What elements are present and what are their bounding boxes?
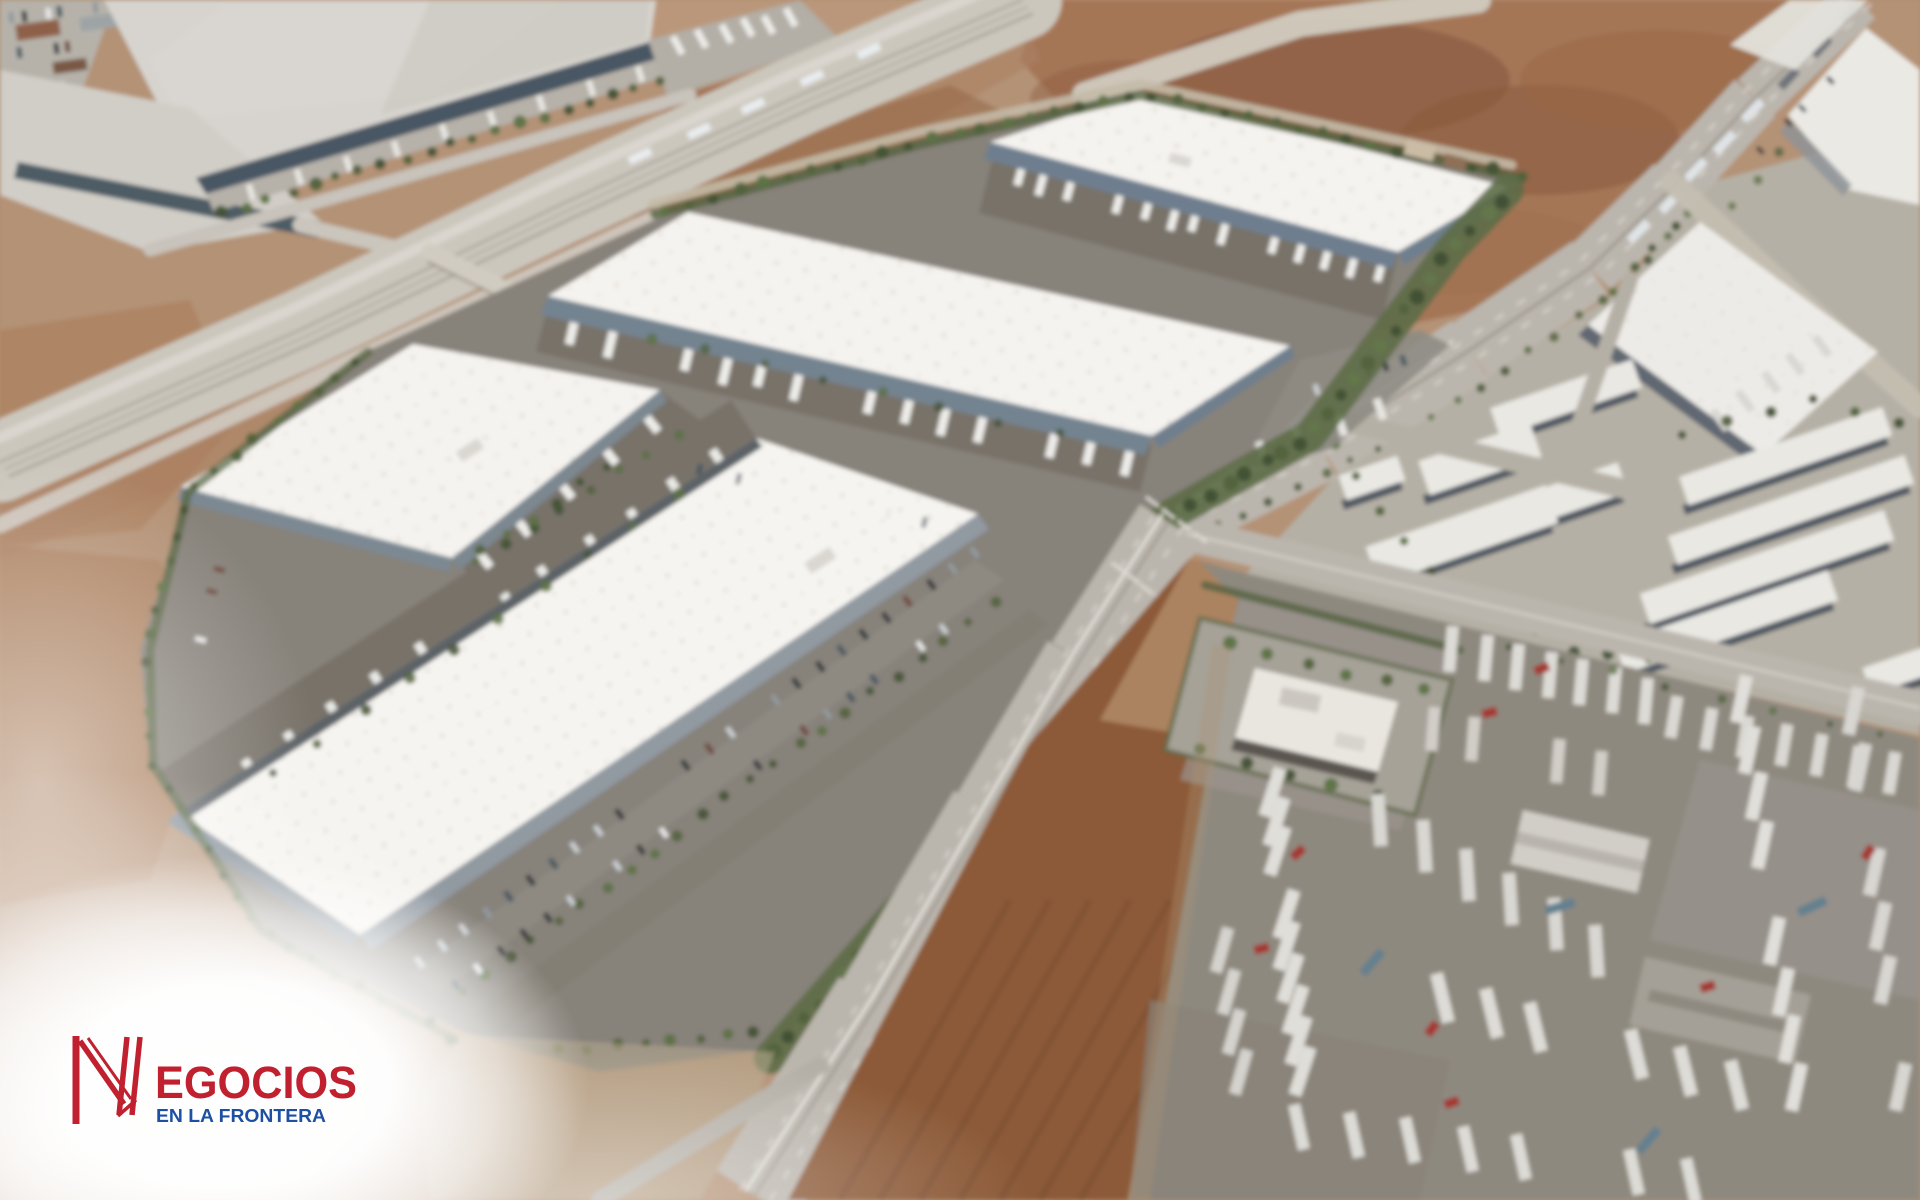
- svg-text:EN LA FRONTERA: EN LA FRONTERA: [156, 1106, 326, 1126]
- svg-text:EGOCIOS: EGOCIOS: [155, 1057, 357, 1108]
